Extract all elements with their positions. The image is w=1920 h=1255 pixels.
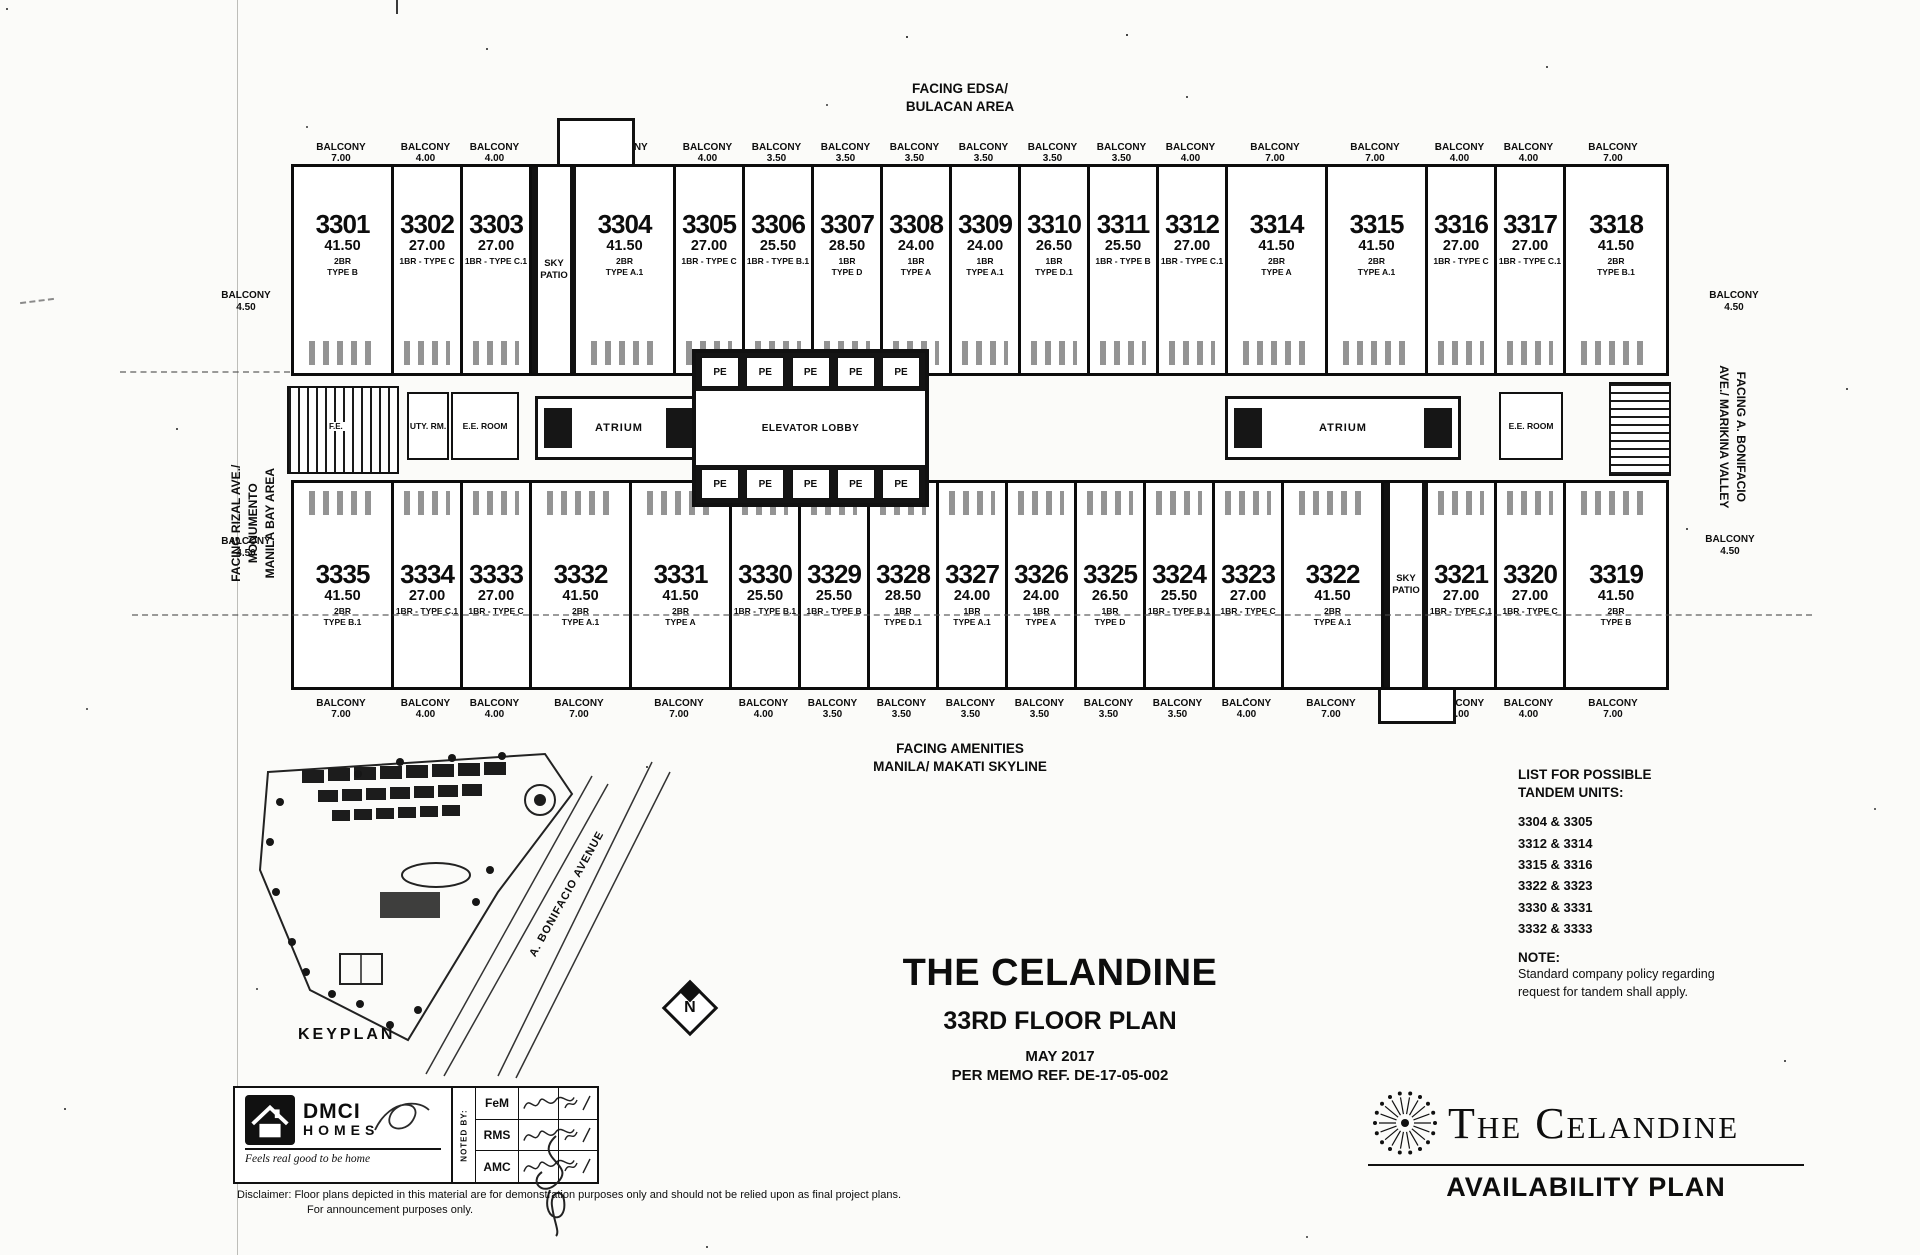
unit-type: 1BR - TYPE C.1 <box>1161 256 1223 267</box>
brand-block: The Celandine AVAILABILITY PLAN <box>1368 1086 1804 1203</box>
balcony-label: BALCONY4.00 <box>1494 690 1563 720</box>
tandem-pair: 3315 & 3316 <box>1518 854 1778 875</box>
balcony-label-left-bottom: BALCONY4.50 <box>214 536 278 559</box>
balcony-label: BALCONY7.00 <box>291 690 391 720</box>
unit-area: 25.50 <box>1105 238 1141 254</box>
unit-type: 1BR - TYPE C <box>681 256 736 267</box>
ee-room-left: E.E. ROOM <box>451 392 519 460</box>
unit-3334: 333427.001BR - TYPE C.1 <box>394 483 463 687</box>
unit-3329: 332925.501BR - TYPE B <box>801 483 870 687</box>
unit-type: 1BR - TYPE B <box>1095 256 1150 267</box>
balcony-label: BALCONY4.00 <box>729 690 798 720</box>
project-title: THE CELANDINE <box>880 952 1240 995</box>
unit-type: 1BR TYPE A <box>1026 606 1056 627</box>
balcony-label-right-bottom: BALCONY4.50 <box>1698 534 1762 557</box>
sky-patio-label: SKY PATIO <box>1392 573 1420 597</box>
tandem-pair: 3332 & 3333 <box>1518 918 1778 939</box>
balcony-label: BALCONY7.00 <box>1225 134 1325 164</box>
unit-type: 1BR - TYPE C <box>1433 256 1488 267</box>
unit-number: 3320 <box>1503 561 1557 587</box>
unit-area: 41.50 <box>1598 588 1634 604</box>
tandem-pair: 3322 & 3323 <box>1518 875 1778 896</box>
balcony-label: BALCONY3.50 <box>1018 134 1087 164</box>
unit-number: 3301 <box>316 211 370 237</box>
balcony-label: BALCONY4.00 <box>1156 134 1225 164</box>
note-block: NOTE: Standard company policy regarding … <box>1518 950 1788 1001</box>
fire-exit-stair-right <box>1609 382 1671 476</box>
unit-area: 25.50 <box>760 238 796 254</box>
bottom-unit-row: 333541.502BR TYPE B.1333427.001BR - TYPE… <box>291 480 1669 690</box>
dmci-logo: DMCI HOMES Feels real good to be home <box>235 1088 453 1182</box>
unit-type: 2BR TYPE A <box>1261 256 1291 277</box>
unit-area: 28.50 <box>885 588 921 604</box>
balcony-label: BALCONY4.00 <box>1425 134 1494 164</box>
elevator-lobby: PEPEPEPEPE ELEVATOR LOBBY PEPEPEPEPE <box>692 349 929 507</box>
unit-number: 3308 <box>889 211 943 237</box>
balcony-label: BALCONY7.00 <box>529 690 629 720</box>
fire-exit-label: F.E. <box>327 422 345 431</box>
balcony-label: BALCONY4.00 <box>1494 134 1563 164</box>
brand-wordmark: The Celandine <box>1448 1098 1739 1149</box>
unit-area: 24.00 <box>967 238 1003 254</box>
approver-initials: AMC <box>476 1151 519 1182</box>
passenger-elevator: PE <box>746 357 784 387</box>
unit-number: 3328 <box>876 561 930 587</box>
unit-area: 27.00 <box>478 588 514 604</box>
unit-number: 3307 <box>820 211 874 237</box>
unit-number: 3335 <box>316 561 370 587</box>
balcony-label: BALCONY3.50 <box>798 690 867 720</box>
unit-3312: 331227.001BR - TYPE C.1 <box>1159 167 1228 373</box>
title-block: THE CELANDINE 33RD FLOOR PLAN MAY 2017 P… <box>880 952 1240 1084</box>
floor-plan-sheet: FACING EDSA/BULACAN AREA FACING AMENITIE… <box>0 0 1920 1255</box>
unit-number: 3321 <box>1434 561 1488 587</box>
unit-3304: 330441.502BR TYPE A.1 <box>576 167 676 373</box>
planter-icon <box>666 408 694 448</box>
building-plan: BALCONY7.00BALCONY4.00BALCONY4.00BALCONY… <box>291 134 1669 720</box>
balcony-label: BALCONY3.50 <box>936 690 1005 720</box>
unit-number: 3323 <box>1221 561 1275 587</box>
unit-3335: 333541.502BR TYPE B.1 <box>294 483 394 687</box>
unit-type: 1BR TYPE D.1 <box>1035 256 1073 277</box>
approval-scribble <box>520 1128 600 1238</box>
sky-patio-label: SKY PATIO <box>540 258 568 282</box>
availability-plan-label: AVAILABILITY PLAN <box>1368 1172 1804 1203</box>
unit-type: 1BR TYPE D.1 <box>884 606 922 627</box>
unit-area: 27.00 <box>1512 588 1548 604</box>
unit-number: 3330 <box>738 561 792 587</box>
unit-3319: 331941.502BR TYPE B <box>1566 483 1666 687</box>
balcony-label-right-top: BALCONY4.50 <box>1702 290 1766 313</box>
balcony-label: BALCONY4.00 <box>391 690 460 720</box>
balcony-label: BALCONY3.50 <box>811 134 880 164</box>
unit-number: 3319 <box>1589 561 1643 587</box>
unit-type: 2BR TYPE B <box>327 256 358 277</box>
unit-3316: 331627.001BR - TYPE C <box>1428 167 1497 373</box>
unit-3306: 330625.501BR - TYPE B.1 <box>745 167 814 373</box>
unit-number: 3306 <box>751 211 805 237</box>
unit-number: 3332 <box>554 561 608 587</box>
unit-area: 26.50 <box>1036 238 1072 254</box>
planter-icon <box>1234 408 1262 448</box>
unit-number: 3329 <box>807 561 861 587</box>
atrium-left: ATRIUM <box>535 396 703 460</box>
unit-3320: 332027.001BR - TYPE C <box>1497 483 1566 687</box>
balcony-label: BALCONY7.00 <box>1563 690 1663 720</box>
unit-number: 3305 <box>682 211 736 237</box>
balcony-label: BALCONY3.50 <box>1087 134 1156 164</box>
celandine-flower-icon <box>1368 1086 1442 1160</box>
scan-noise <box>6 8 8 10</box>
planter-icon <box>1424 408 1452 448</box>
unit-type: 1BR - TYPE B.1 <box>747 256 809 267</box>
planter-icon <box>544 408 572 448</box>
signature-scribble <box>363 1090 443 1146</box>
unit-type: 1BR TYPE A.1 <box>966 256 1003 277</box>
unit-number: 3314 <box>1250 211 1304 237</box>
passenger-elevator: PE <box>837 357 875 387</box>
unit-type: 1BR TYPE A.1 <box>953 606 990 627</box>
unit-3317: 331727.001BR - TYPE C.1 <box>1497 167 1566 373</box>
ee-room-right: E.E. ROOM <box>1499 392 1563 460</box>
sky-patio: SKY PATIO <box>532 167 576 373</box>
brand-rule <box>1368 1164 1804 1166</box>
unit-3327: 332724.001BR TYPE A.1 <box>939 483 1008 687</box>
tandem-pair: 3312 & 3314 <box>1518 833 1778 854</box>
unit-type: 2BR TYPE B.1 <box>324 606 362 627</box>
balcony-label: BALCONY3.50 <box>1143 690 1212 720</box>
section-line <box>132 614 1812 616</box>
balcony-label: BALCONY7.00 <box>1325 134 1425 164</box>
balcony-label: BALCONY7.00 <box>1281 690 1381 720</box>
unit-area: 27.00 <box>1174 238 1210 254</box>
passenger-elevator: PE <box>792 469 830 499</box>
unit-type: 2BR TYPE A.1 <box>606 256 643 277</box>
dmci-tagline: Feels real good to be home <box>245 1153 441 1165</box>
unit-area: 25.50 <box>1161 588 1197 604</box>
unit-3333: 333327.001BR - TYPE C <box>463 483 532 687</box>
unit-area: 41.50 <box>324 238 360 254</box>
unit-number: 3309 <box>958 211 1012 237</box>
balcony-label: BALCONY3.50 <box>949 134 1018 164</box>
balcony-label: BALCONY3.50 <box>867 690 936 720</box>
unit-area: 41.50 <box>324 588 360 604</box>
unit-number: 3333 <box>469 561 523 587</box>
unit-number: 3325 <box>1083 561 1137 587</box>
unit-area: 25.50 <box>816 588 852 604</box>
top-balcony-row: BALCONY7.00BALCONY4.00BALCONY4.00BALCONY… <box>291 134 1669 164</box>
unit-number: 3324 <box>1152 561 1206 587</box>
unit-type: 2BR TYPE A.1 <box>1314 606 1351 627</box>
unit-area: 27.00 <box>1443 238 1479 254</box>
scan-smudge <box>20 298 54 304</box>
unit-3326: 332624.001BR TYPE A <box>1008 483 1077 687</box>
unit-area: 41.50 <box>662 588 698 604</box>
memo-reference: PER MEMO REF. DE-17-05-002 <box>880 1067 1240 1084</box>
unit-area: 25.50 <box>747 588 783 604</box>
unit-number: 3326 <box>1014 561 1068 587</box>
balcony-label: BALCONY7.00 <box>291 134 391 164</box>
balcony-label-left-top: BALCONY4.50 <box>214 290 278 313</box>
section-line-stub <box>120 371 290 373</box>
unit-3301: 330141.502BR TYPE B <box>294 167 394 373</box>
unit-3331: 333141.502BR TYPE A <box>632 483 732 687</box>
tandem-pair: 3304 & 3305 <box>1518 811 1778 832</box>
unit-area: 24.00 <box>898 238 934 254</box>
passenger-elevator: PE <box>837 469 875 499</box>
unit-number: 3303 <box>469 211 523 237</box>
unit-3305: 330527.001BR - TYPE C <box>676 167 745 373</box>
unit-type: 1BR TYPE D <box>1095 606 1126 627</box>
unit-area: 41.50 <box>562 588 598 604</box>
unit-area: 26.50 <box>1092 588 1128 604</box>
unit-area: 27.00 <box>409 588 445 604</box>
unit-type: 1BR TYPE A <box>901 256 931 277</box>
passenger-elevator: PE <box>882 469 920 499</box>
disclaimer: Disclaimer: Floor plans depicted in this… <box>237 1188 1017 1219</box>
keyplan: A. BONIFACIO AVENUE KEYPLAN N <box>240 742 720 1082</box>
unit-3310: 331026.501BR TYPE D.1 <box>1021 167 1090 373</box>
balcony-label: BALCONY4.00 <box>460 690 529 720</box>
unit-number: 3304 <box>598 211 652 237</box>
balcony-label: BALCONY4.00 <box>1212 690 1281 720</box>
facing-label-bottom: FACING AMENITIESMANILA/ MAKATI SKYLINE <box>700 740 1220 775</box>
passenger-elevator: PE <box>882 357 920 387</box>
unit-type: 2BR TYPE A.1 <box>1358 256 1395 277</box>
unit-area: 27.00 <box>1230 588 1266 604</box>
unit-area: 24.00 <box>954 588 990 604</box>
unit-area: 27.00 <box>691 238 727 254</box>
unit-number: 3318 <box>1589 211 1643 237</box>
unit-area: 41.50 <box>606 238 642 254</box>
tandem-pairs: 3304 & 33053312 & 33143315 & 33163322 & … <box>1518 811 1778 940</box>
unit-number: 3315 <box>1350 211 1404 237</box>
unit-3321: 332127.001BR - TYPE C.1 <box>1428 483 1497 687</box>
unit-number: 3302 <box>400 211 454 237</box>
balcony-label: BALCONY3.50 <box>1074 690 1143 720</box>
unit-type: 1BR TYPE D <box>832 256 863 277</box>
balcony-label: BALCONY4.00 <box>391 134 460 164</box>
core-band: F.E. UTY. RM. E.E. ROOM ATRIUM PEPEPEPEP… <box>291 376 1669 480</box>
unit-type: 2BR TYPE B <box>1601 606 1632 627</box>
elevator-bank-top: PEPEPEPEPE <box>696 353 925 391</box>
unit-3318: 331841.502BR TYPE B.1 <box>1566 167 1666 373</box>
sky-patio: SKY PATIO <box>1384 483 1428 687</box>
date-scribble <box>561 1090 595 1116</box>
unit-number: 3334 <box>400 561 454 587</box>
fire-exit-stair-left: F.E. <box>287 386 399 474</box>
tandem-list: LIST FOR POSSIBLETANDEM UNITS: 3304 & 33… <box>1518 766 1778 940</box>
unit-3323: 332327.001BR - TYPE C <box>1215 483 1284 687</box>
unit-area: 27.00 <box>478 238 514 254</box>
tandem-title: LIST FOR POSSIBLETANDEM UNITS: <box>1518 766 1778 801</box>
unit-3314: 331441.502BR TYPE A <box>1228 167 1328 373</box>
unit-number: 3322 <box>1306 561 1360 587</box>
unit-number: 3331 <box>654 561 708 587</box>
unit-3332: 333241.502BR TYPE A.1 <box>532 483 632 687</box>
bottom-balcony-row: BALCONY7.00BALCONY4.00BALCONY4.00BALCONY… <box>291 690 1669 720</box>
tandem-pair: 3330 & 3331 <box>1518 897 1778 918</box>
noted-by-label: NOTED BY: <box>453 1088 476 1182</box>
unit-3315: 331541.502BR TYPE A.1 <box>1328 167 1428 373</box>
unit-number: 3312 <box>1165 211 1219 237</box>
elevator-bank-bottom: PEPEPEPEPE <box>696 465 925 503</box>
approver-initials: RMS <box>476 1120 519 1151</box>
unit-3328: 332828.501BR TYPE D.1 <box>870 483 939 687</box>
unit-type: 2BR TYPE A <box>665 606 695 627</box>
atrium-right: ATRIUM <box>1225 396 1461 460</box>
plan-date: MAY 2017 <box>880 1048 1240 1065</box>
unit-number: 3317 <box>1503 211 1557 237</box>
unit-type: 2BR TYPE B.1 <box>1597 256 1635 277</box>
unit-3309: 330924.001BR TYPE A.1 <box>952 167 1021 373</box>
balcony-label: BALCONY7.00 <box>629 690 729 720</box>
facing-label-right: FACING A. BONIFACIOAVE./ MARIKINA VALLEY <box>1715 317 1749 557</box>
passenger-elevator: PE <box>701 469 739 499</box>
unit-area: 27.00 <box>409 238 445 254</box>
unit-type: 1BR - TYPE C.1 <box>1499 256 1561 267</box>
unit-area: 27.00 <box>1512 238 1548 254</box>
balcony-label: BALCONY4.00 <box>673 134 742 164</box>
unit-3302: 330227.001BR - TYPE C <box>394 167 463 373</box>
balcony-label: BALCONY3.50 <box>1005 690 1074 720</box>
unit-3324: 332425.501BR - TYPE B.1 <box>1146 483 1215 687</box>
balcony-label: BALCONY4.00 <box>460 134 529 164</box>
floor-plan-title: 33RD FLOOR PLAN <box>880 1007 1240 1036</box>
unit-3308: 330824.001BR TYPE A <box>883 167 952 373</box>
unit-3330: 333025.501BR - TYPE B.1 <box>732 483 801 687</box>
passenger-elevator: PE <box>792 357 830 387</box>
noted-by-row: FeM <box>476 1088 597 1120</box>
passenger-elevator: PE <box>746 469 784 499</box>
unit-3311: 331125.501BR - TYPE B <box>1090 167 1159 373</box>
unit-number: 3310 <box>1027 211 1081 237</box>
unit-area: 41.50 <box>1258 238 1294 254</box>
utility-room: UTY. RM. <box>407 392 449 460</box>
unit-type: 1BR - TYPE C <box>399 256 454 267</box>
unit-number: 3311 <box>1097 211 1149 237</box>
unit-area: 28.50 <box>829 238 865 254</box>
dmci-rule <box>245 1148 441 1150</box>
balcony-label: BALCONY3.50 <box>880 134 949 164</box>
balcony-label: BALCONY7.00 <box>1563 134 1663 164</box>
unit-number: 3327 <box>945 561 999 587</box>
facing-label-top: FACING EDSA/BULACAN AREA <box>0 80 1920 115</box>
unit-3307: 330728.501BR TYPE D <box>814 167 883 373</box>
passenger-elevator: PE <box>701 357 739 387</box>
unit-3322: 332241.502BR TYPE A.1 <box>1284 483 1384 687</box>
unit-3303: 330327.001BR - TYPE C.1 <box>463 167 532 373</box>
elevator-lobby-label: ELEVATOR LOBBY <box>696 423 925 434</box>
unit-3325: 332526.501BR TYPE D <box>1077 483 1146 687</box>
unit-area: 41.50 <box>1314 588 1350 604</box>
keyplan-label: KEYPLAN <box>298 1026 395 1044</box>
unit-area: 24.00 <box>1023 588 1059 604</box>
balcony-label: BALCONY3.50 <box>742 134 811 164</box>
unit-area: 41.50 <box>1598 238 1634 254</box>
signature-cell <box>519 1088 558 1119</box>
unit-area: 27.00 <box>1443 588 1479 604</box>
unit-number: 3316 <box>1434 211 1488 237</box>
note-label: NOTE: <box>1518 950 1788 965</box>
top-unit-row: 330141.502BR TYPE B330227.001BR - TYPE C… <box>291 164 1669 376</box>
approver-initials: FeM <box>476 1088 519 1119</box>
scan-mark <box>396 0 398 14</box>
unit-type: 1BR - TYPE C.1 <box>465 256 527 267</box>
dmci-house-icon <box>245 1095 295 1145</box>
unit-area: 41.50 <box>1358 238 1394 254</box>
unit-type: 2BR TYPE A.1 <box>562 606 599 627</box>
facing-label-left: FACING RIZAL AVE./MONUMENTOMANILA BAY AR… <box>228 398 278 648</box>
date-cell <box>558 1088 597 1119</box>
